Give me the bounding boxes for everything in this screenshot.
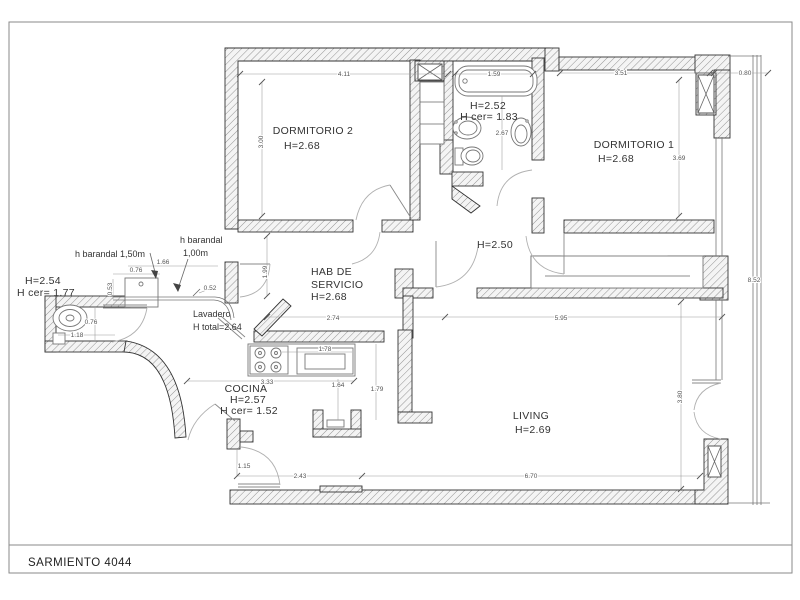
- door-toilette: [103, 305, 147, 342]
- window-dorm1: [716, 137, 722, 256]
- toilet: [455, 147, 483, 165]
- duct-x-top-right: [698, 75, 714, 113]
- duct-x-dorm2: [418, 64, 442, 80]
- dim-cocina-179: 1.79: [371, 386, 384, 393]
- room-height-lavadero: H total=2.64: [193, 322, 242, 332]
- room-ceiling-toilette: H cer= 1.77: [17, 287, 75, 299]
- floor-plan-sheet: SARMIENTO 4044: [0, 0, 800, 600]
- room-label-habservicio-1: HAB DE: [311, 266, 352, 278]
- duct-x-bottom-right: [708, 446, 721, 477]
- note-barandal-100a: h barandal: [180, 235, 223, 245]
- room-label-living: LIVING: [513, 410, 549, 422]
- dim-cocina-w: 3.33: [261, 379, 274, 386]
- dim-balc-052: 0.52: [204, 285, 217, 292]
- window-living: [716, 300, 722, 380]
- room-height-dormitorio2: H=2.68: [284, 140, 320, 152]
- dim-hall-living-w: 5.95: [555, 315, 568, 322]
- dim-dorm2-w: 3.00: [258, 135, 265, 148]
- dim-top-dorm2: 4.11: [338, 71, 351, 78]
- dim-toil-076: 0.76: [85, 319, 98, 326]
- dim-top-balcony: 0.80: [739, 70, 752, 77]
- dim-toil-118: 1.18: [71, 332, 84, 339]
- door-habserv-top: [352, 232, 380, 264]
- dim-counter-w: 1.78: [319, 346, 332, 353]
- door-hall: [436, 241, 478, 287]
- dim-entry-door: 1.15: [238, 463, 251, 470]
- dim-balc-076: 0.76: [130, 267, 143, 274]
- dim-dorm1-h: 3.69: [673, 155, 686, 162]
- room-label-lavadero: Lavadero: [193, 309, 231, 319]
- dim-living-h: 3.80: [677, 390, 684, 403]
- sheet-title: SARMIENTO 4044: [28, 557, 132, 569]
- dim-balc-053: 0.53: [107, 282, 114, 295]
- room-height-habservicio: H=2.68: [311, 291, 347, 303]
- dim-living-w: 6.70: [525, 473, 538, 480]
- room-ceiling-banio: H cer= 1.83: [460, 111, 518, 123]
- closet-hall: [531, 256, 703, 288]
- room-ceiling-cocina: H cer= 1.52: [220, 405, 278, 417]
- note-barandal-100b: 1,00m: [183, 248, 208, 258]
- room-label-dormitorio1: DORMITORIO 1: [594, 139, 674, 151]
- closet-dorm2: [420, 82, 444, 144]
- room-height-dormitorio1: H=2.68: [598, 153, 634, 165]
- dim-balc-166: 1.66: [157, 259, 170, 266]
- dim-habserv-h: 1.99: [262, 265, 269, 278]
- room-height-living: H=2.69: [515, 424, 551, 436]
- room-height-hall: H=2.50: [477, 239, 513, 251]
- floor-plan-drawing: SARMIENTO 4044: [0, 0, 800, 600]
- room-label-dormitorio2: DORMITORIO 2: [273, 125, 353, 137]
- dim-top-dorm1: 3.51: [615, 70, 628, 77]
- room-height-toilette: H=2.54: [25, 275, 61, 287]
- dim-entry-w: 2.43: [294, 473, 307, 480]
- dim-cocina-164: 1.64: [332, 382, 345, 389]
- room-label-habservicio-2: SERVICIO: [311, 279, 363, 291]
- door-living-balcony: [692, 380, 721, 439]
- dim-banio-h: 2.67: [496, 130, 509, 137]
- dim-top-tub: 1.59: [488, 71, 501, 78]
- dim-habserv-w: 2.74: [327, 315, 340, 322]
- door-bath: [497, 170, 532, 206]
- door-dorm2: [356, 185, 411, 220]
- niche-box: [327, 420, 344, 427]
- dim-balcony-h: 8.52: [748, 277, 761, 284]
- note-barandal-150: h barandal 1,50m: [75, 249, 145, 259]
- planter: [125, 278, 158, 307]
